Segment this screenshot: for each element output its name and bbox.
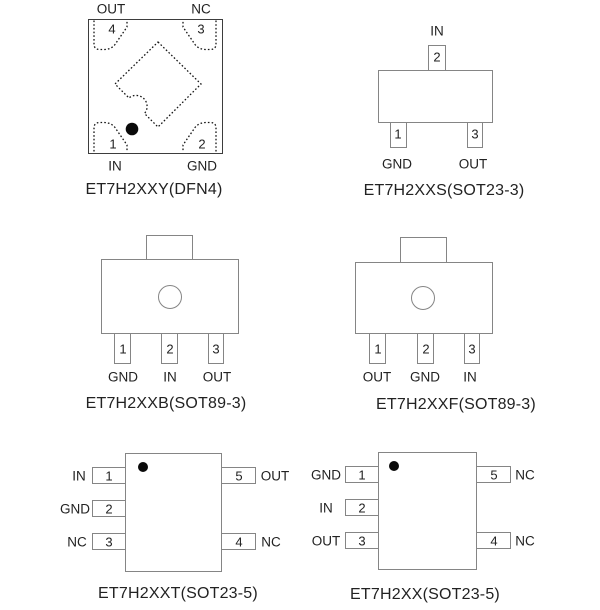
sot23-5-x-pin4-number: 4 — [490, 535, 497, 548]
sot23-5-x-pin5-number: 5 — [490, 469, 497, 482]
sot23-5-x-label-gnd: GND — [311, 468, 341, 482]
sot23-5-x-caption: ET7H2XX(SOT23-5) — [350, 587, 500, 603]
sot23-5-x-pin2-number: 2 — [358, 502, 365, 515]
sot23-5-x-label-nc-5: NC — [515, 468, 535, 482]
sot23-5-x-label-out: OUT — [312, 534, 341, 548]
pkg-sot23-5-x: 1 2 3 5 4 GND IN OUT NC NC ET7H2XX(SOT23… — [0, 0, 600, 610]
sot23-5-x-pin1-marker-dot — [389, 461, 399, 471]
sot23-5-x-pin3-number: 3 — [358, 535, 365, 548]
sot23-5-x-label-nc-4: NC — [515, 534, 535, 548]
sot23-5-x-label-in: IN — [319, 501, 333, 515]
pinout-diagram-sheet: OUT NC 4 3 1 2 IN GND ET7H2XXY(DFN4) I — [0, 0, 600, 610]
sot23-5-x-pin1-number: 1 — [358, 469, 365, 482]
